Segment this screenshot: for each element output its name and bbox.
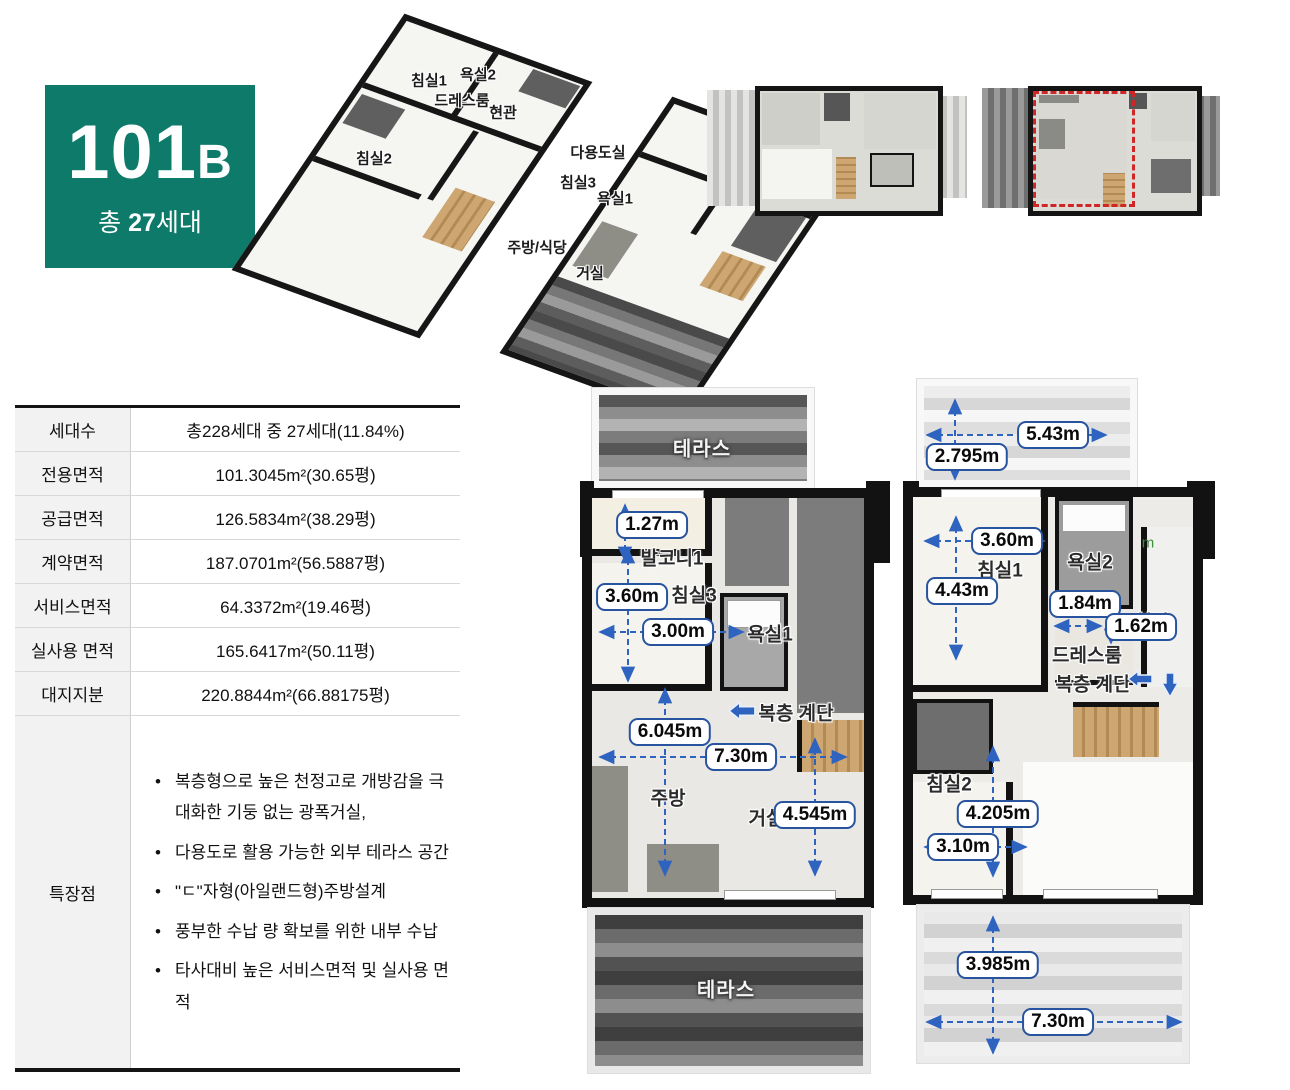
closet — [1151, 159, 1191, 193]
room-label: 욕실2 — [460, 64, 496, 85]
closet — [824, 93, 850, 121]
row-label: 전용면적 — [15, 452, 131, 495]
unit-info-table: 세대수 총228세대 중 27세대(11.84%) 전용면적 101.3045m… — [15, 405, 460, 1072]
bath — [870, 153, 914, 187]
room-label: 침실1 — [411, 70, 447, 91]
room-label: 욕실2 — [1067, 548, 1113, 575]
terrace-stripes — [982, 88, 1030, 208]
room-label: 침실3 — [671, 581, 717, 608]
row-label: 세대수 — [15, 408, 131, 451]
dim-label: 2.795m — [926, 443, 1008, 471]
dim-label: 1.27m — [616, 511, 688, 539]
room-label: 다용도실 — [570, 142, 625, 163]
table-row: 계약면적 187.0701m²(56.5887평) — [15, 540, 460, 584]
dim-label: 3.60m — [971, 527, 1043, 555]
unit-suffix: B — [197, 136, 233, 189]
dim-label: 3.985m — [957, 951, 1039, 979]
bathtub — [1062, 504, 1126, 532]
room-fill — [762, 149, 832, 199]
row-value: 187.0701m²(56.5887평) — [131, 540, 460, 583]
room-label: 욕실1 — [747, 620, 793, 647]
stairs-direction-arrow-icon — [728, 701, 756, 726]
room-fill — [762, 93, 820, 145]
table-row-features: 특장점 복층형으로 높은 천정고로 개방감을 극대화한 기둥 없는 광폭거실, … — [15, 716, 460, 1068]
closet — [725, 498, 789, 586]
dim-label: 4.43m — [926, 577, 998, 605]
feature-item: "ㄷ"자형(아일랜드형)주방설계 — [147, 876, 454, 907]
row-label: 특장점 — [15, 716, 131, 1068]
unit-total-households: 총 27세대 — [45, 203, 255, 239]
window — [931, 889, 1003, 899]
dim-label: 5.43m — [1017, 421, 1089, 449]
open-void — [1023, 762, 1193, 895]
mini-plan-lower-floor — [982, 84, 1220, 218]
row-value: 총228세대 중 27세대(11.84%) — [131, 408, 460, 451]
row-value: 101.3045m²(30.65평) — [131, 452, 460, 495]
feature-item: 다용도로 활용 가능한 외부 테라스 공간 — [147, 837, 454, 868]
row-label: 서비스면적 — [15, 584, 131, 627]
iso-upper-floor — [232, 14, 593, 339]
dim-label: 3.10m — [927, 833, 999, 861]
closet — [797, 498, 864, 713]
dim-label: 4.545m — [774, 801, 856, 829]
window — [1043, 889, 1158, 899]
table-row: 서비스면적 64.3372m²(19.46평) — [15, 584, 460, 628]
isometric-3d-view: 침실1 욕실2 드레스룸 현관 침실2 다용도실 침실3 욕실1 주방/식당 거… — [280, 8, 700, 398]
detail-plan-lower-level: 테라스 1.27m 발코니1 3.60m 침실3 3.00m 욕실1 복층 계단… — [580, 385, 900, 1085]
room-label: 주방/식당 — [507, 237, 566, 258]
row-value: 220.8844m²(66.88175평) — [131, 672, 460, 715]
room-label: 거실 — [576, 263, 604, 284]
feature-item: 복층형으로 높은 천정고로 개방감을 극대화한 기둥 없는 광폭거실, — [147, 766, 454, 829]
room-label: 침실2 — [926, 770, 972, 797]
row-value: 165.6417m²(50.11평) — [131, 628, 460, 671]
terrace-stripes — [707, 90, 757, 206]
stairs — [797, 720, 864, 772]
table-row: 실사용 면적 165.6417m²(50.11평) — [15, 628, 460, 672]
row-label: 실사용 면적 — [15, 628, 131, 671]
room-label: 욕실1 — [597, 188, 633, 209]
watermark-text: m — [1142, 535, 1155, 552]
stairs — [700, 251, 766, 301]
features-list: 복층형으로 높은 천정고로 개방감을 극대화한 기둥 없는 광폭거실, 다용도로… — [131, 758, 460, 1026]
feature-item: 타사대비 높은 서비스면적 및 실사용 면적 — [147, 955, 454, 1018]
dim-label: 3.60m — [596, 583, 668, 611]
table-row: 공급면적 126.5834m²(38.29평) — [15, 496, 460, 540]
closet — [913, 699, 993, 774]
room-label: 드레스룸 — [434, 90, 489, 111]
room-label: 발코니1 — [640, 544, 703, 571]
room-label: 복층 계단 — [1055, 670, 1130, 697]
room-label: 복층 계단 — [758, 699, 833, 726]
row-label: 공급면적 — [15, 496, 131, 539]
dim-label: 1.62m — [1105, 613, 1177, 641]
terrace-label: 테라스 — [673, 433, 731, 462]
room-fill — [864, 93, 936, 149]
room-fill — [1151, 93, 1195, 141]
row-value: 64.3372m²(19.46평) — [131, 584, 460, 627]
mini-plan-body — [1028, 86, 1202, 216]
mini-plan-upper-floor — [707, 84, 967, 218]
row-value: 126.5834m²(38.29평) — [131, 496, 460, 539]
terrace-label: 테라스 — [697, 974, 755, 1003]
stairs-direction-arrow-icon — [1127, 670, 1153, 693]
feature-item: 풍부한 수납 량 확보를 위한 내부 수납 — [147, 916, 454, 947]
terrace-bottom — [917, 905, 1189, 1063]
unit-type-badge: 101B 총 27세대 — [45, 85, 255, 268]
stairs — [1073, 702, 1159, 757]
room-label: 침실3 — [560, 172, 596, 193]
dim-label: 7.30m — [1022, 1008, 1094, 1036]
dim-label: 3.00m — [642, 618, 714, 646]
closet — [518, 69, 580, 108]
table-row: 세대수 총228세대 중 27세대(11.84%) — [15, 408, 460, 452]
unit-type-code: 101B — [45, 115, 255, 191]
table-row: 대지지분 220.8844m²(66.88175평) — [15, 672, 460, 716]
window — [724, 890, 836, 900]
detail-plan-upper-level: 5.43m 2.795m 3.60m 침실1 욕실2 m 현관 4.43m 1.… — [903, 373, 1218, 1080]
highlight-dashed-box — [1033, 91, 1135, 207]
floorplan-brochure-page: 101B 총 27세대 침실1 욕실2 드레스룸 현관 침실2 다용도실 침실3 — [0, 0, 1290, 1090]
row-label: 대지지분 — [15, 672, 131, 715]
row-value: 복층형으로 높은 천정고로 개방감을 극대화한 기둥 없는 광폭거실, 다용도로… — [131, 716, 460, 1068]
unit-number: 101 — [67, 110, 197, 195]
dim-label: 6.045m — [629, 718, 711, 746]
table-row: 전용면적 101.3045m²(30.65평) — [15, 452, 460, 496]
room-label: 현관 — [489, 102, 517, 123]
stairs — [836, 157, 856, 199]
dim-label: 7.30m — [705, 743, 777, 771]
row-label: 계약면적 — [15, 540, 131, 583]
dim-label: 4.205m — [957, 800, 1039, 828]
kitchen-counter — [592, 766, 628, 892]
kitchen-counter — [647, 844, 719, 892]
stairs-down-arrow-icon — [1161, 672, 1179, 703]
mini-plan-body — [755, 86, 943, 216]
room-label: 드레스룸 — [1052, 641, 1122, 668]
closet — [342, 94, 405, 139]
room-label: 침실2 — [356, 148, 392, 169]
room-label: 주방 — [651, 784, 686, 811]
